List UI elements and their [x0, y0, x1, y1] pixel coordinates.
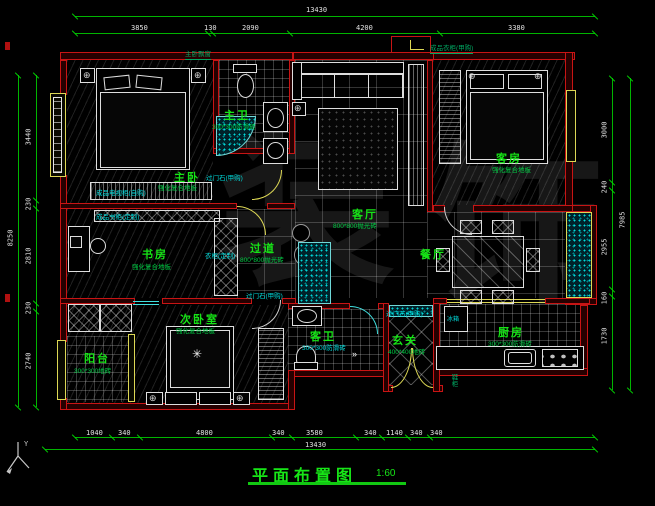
dim-label: 340	[272, 429, 285, 437]
dining-chair	[492, 220, 514, 234]
pillow	[135, 75, 162, 91]
bay-window-dining	[566, 212, 592, 298]
dim-label: 13430	[305, 441, 326, 449]
dim-label: 3440	[24, 129, 32, 146]
annotation-wardrobe-study: 衣柜(定制)	[205, 250, 235, 260]
bay-window-glazing	[53, 97, 62, 173]
annotation-door-stone: 过门石(甲购)	[246, 290, 283, 300]
annotation-door-stone: 过门石(甲购)	[206, 172, 243, 182]
dim-label: 160	[600, 292, 608, 305]
room-finish-kitchen: 300*300防滑砖	[488, 338, 532, 348]
annotation-tv-cabinet: 成品电视柜(自购)	[96, 187, 146, 197]
dim-label: 13430	[306, 6, 327, 14]
annotation-door-stone: 过门石(甲购)	[386, 308, 423, 318]
wall	[60, 60, 67, 95]
room-finish-guest-bath: 300*300防滑砖	[302, 342, 346, 352]
computer	[70, 236, 82, 248]
dim-label: 3580	[306, 429, 323, 437]
axis-y-icon	[2, 438, 36, 480]
room-finish-second-bedroom: 强化复合地板	[176, 325, 215, 335]
ceiling-lamp-icon: ⊕	[194, 71, 202, 80]
room-label-dining: 餐厅	[420, 246, 446, 262]
dining-chair	[460, 220, 482, 234]
room-label-study: 书房	[142, 246, 168, 262]
wall	[427, 60, 433, 212]
dim-line-left-total	[18, 75, 19, 407]
dim-label: 4200	[356, 24, 373, 32]
kitchen-sink-bowl	[508, 352, 532, 364]
dim-label: 230	[24, 198, 32, 211]
dining-chair	[492, 290, 514, 304]
ceiling-lamp-icon: ⊕	[236, 394, 244, 403]
room-finish-study: 强化复合地板	[132, 261, 171, 271]
tv-wall-cabinet	[408, 64, 424, 206]
annotation-wardrobe: 成品衣柜(甲购)	[430, 42, 473, 54]
dim-label: 7985	[618, 212, 626, 229]
wall	[293, 52, 435, 60]
storage-cabinet	[68, 304, 100, 332]
storage-cabinet	[100, 304, 132, 332]
annotation-bookcase: 成品书柜(定制)	[96, 211, 139, 221]
washing-machine-drum	[267, 142, 284, 159]
wardrobe-guest	[439, 70, 461, 164]
annotation-shoe-cabinet: 鞋柜	[448, 374, 458, 387]
room-finish-master-bath: 300*300防滑砖	[212, 121, 256, 131]
dim-line-bottom-segments	[75, 437, 595, 438]
drawing-scale: 1:60	[376, 468, 395, 479]
dim-label: 8250	[6, 230, 14, 247]
room-finish-master-bedroom: 强化复合地板	[158, 182, 197, 192]
balcony-sliding-door	[133, 304, 159, 305]
annotation-bay-window: 主卧飘窗	[185, 48, 211, 60]
sink-basin	[297, 309, 317, 323]
chair	[90, 238, 106, 254]
wardrobe-second	[258, 328, 284, 400]
bed-duvet	[100, 92, 186, 168]
dim-label: 3850	[131, 24, 148, 32]
dim-label: 3380	[508, 24, 525, 32]
ceiling-lamp-icon: ⊕	[468, 72, 476, 81]
toilet-tank	[294, 362, 318, 370]
wall	[288, 370, 389, 377]
dim-label: 2955	[600, 239, 608, 256]
dining-table	[452, 236, 524, 288]
grid-mark	[5, 294, 10, 302]
sofa-back	[300, 62, 404, 74]
toilet-tank	[233, 64, 257, 73]
dim-label: 340	[430, 429, 443, 437]
dim-line-left-segments	[36, 75, 37, 407]
dim-label: 340	[410, 429, 423, 437]
duct-column	[298, 242, 331, 304]
wall	[60, 52, 293, 60]
room-label-balcony: 阳台	[84, 350, 110, 366]
dim-label: 2090	[242, 24, 259, 32]
window-divider-balcony	[128, 334, 135, 402]
dim-label: 340	[364, 429, 377, 437]
dim-line-top-total	[75, 16, 595, 17]
dim-label: 3000	[600, 122, 608, 139]
pillow	[103, 75, 130, 91]
dim-label: 130	[204, 24, 217, 32]
room-finish-living: 800*800抛光砖	[333, 220, 377, 230]
stove	[542, 349, 578, 367]
wall	[433, 298, 440, 392]
dim-label: 240	[600, 181, 608, 194]
wall	[433, 298, 447, 304]
annotation-fridge: 冰箱	[447, 314, 459, 323]
dining-chair	[526, 248, 540, 272]
sofa-armrest	[292, 62, 302, 100]
wall	[267, 203, 295, 209]
sink-basin	[267, 108, 284, 128]
ceiling-lamp-icon: ⊕	[149, 394, 157, 403]
wall	[162, 298, 252, 304]
dim-label: 340	[118, 429, 131, 437]
dim-label: 2810	[24, 248, 32, 265]
dim-label: 230	[24, 302, 32, 315]
dining-chair	[460, 290, 482, 304]
dim-line-right-segments	[612, 78, 613, 390]
room-finish-entry: 400*400地砖	[388, 346, 425, 356]
dim-label: 1040	[86, 429, 103, 437]
floor-plan-canvas: 装 饰	[0, 0, 655, 506]
bed-bench	[199, 392, 231, 405]
window-balcony	[57, 340, 66, 400]
room-finish-guest: 强化复合地板	[492, 164, 531, 174]
wall	[545, 298, 590, 304]
ceiling-lamp-icon: ⊕	[534, 72, 542, 81]
axis-label: Y	[24, 440, 28, 448]
grid-mark	[5, 42, 10, 50]
room-finish-balcony: 300*300地砖	[74, 365, 111, 375]
toilet	[237, 74, 254, 98]
title-underline	[248, 482, 406, 485]
rug	[318, 108, 398, 190]
dim-label: 4800	[196, 429, 213, 437]
wall	[288, 370, 295, 410]
shower-icon: »	[352, 350, 357, 359]
sofa-seats	[300, 74, 404, 98]
dim-label: 2740	[24, 353, 32, 370]
dim-line-bottom-total	[45, 449, 595, 450]
dim-line-top-segments	[75, 33, 595, 34]
room-finish-hallway: 800*800抛光砖	[240, 254, 284, 264]
window-guest-room	[566, 90, 576, 162]
ceiling-lamp-icon: ⊕	[83, 71, 91, 80]
dim-label: 1140	[386, 429, 403, 437]
ceiling-lamp-icon: ⊕	[294, 104, 302, 113]
dim-label: 1730	[600, 328, 608, 345]
balcony-sliding-door	[133, 301, 159, 302]
wall	[60, 175, 67, 342]
wall	[60, 203, 237, 209]
plant	[292, 224, 310, 242]
window-corner	[410, 40, 424, 50]
wall	[473, 205, 573, 212]
desk	[68, 226, 90, 272]
flower-icon: ✳	[192, 350, 202, 359]
bed-bench	[165, 392, 197, 405]
dim-line-right-total	[630, 78, 631, 390]
